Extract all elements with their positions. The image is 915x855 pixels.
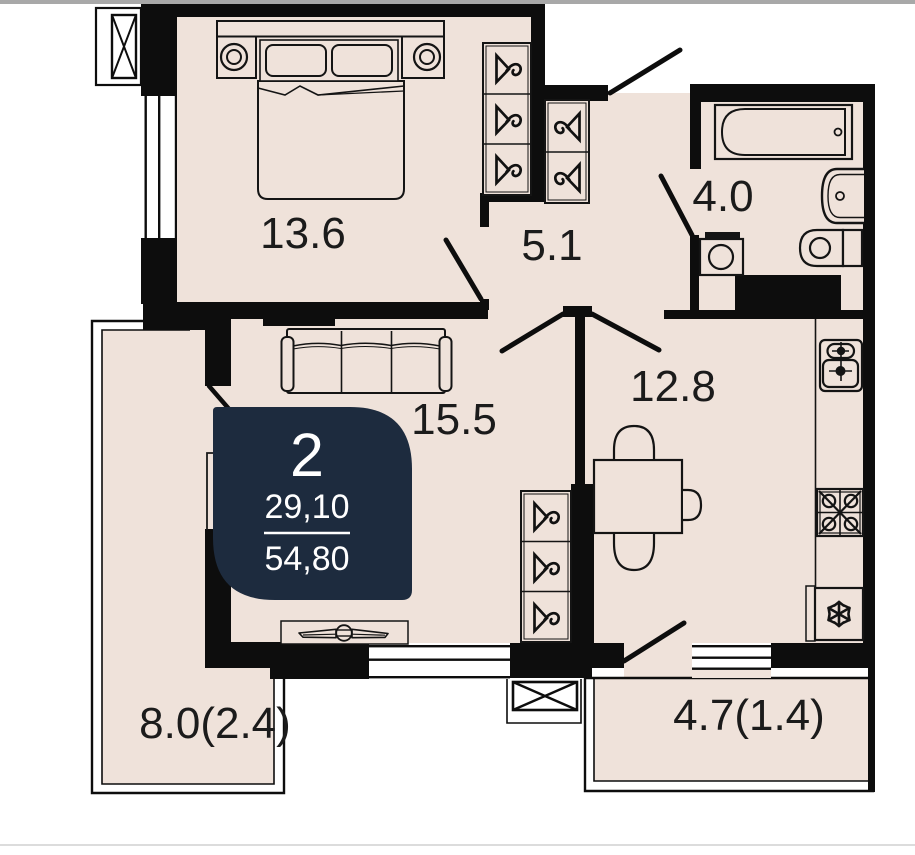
svg-text:8.0(2.4): 8.0(2.4) bbox=[139, 699, 291, 748]
svg-text:12.8: 12.8 bbox=[630, 362, 716, 411]
svg-text:13.6: 13.6 bbox=[260, 209, 346, 258]
svg-text:5.1: 5.1 bbox=[521, 221, 582, 270]
svg-text:54,80: 54,80 bbox=[264, 540, 349, 578]
svg-text:2: 2 bbox=[290, 421, 324, 489]
svg-text:29,10: 29,10 bbox=[264, 488, 349, 526]
svg-text:4.0: 4.0 bbox=[692, 172, 753, 221]
svg-text:15.5: 15.5 bbox=[411, 395, 497, 444]
svg-text:4.7(1.4): 4.7(1.4) bbox=[673, 691, 825, 740]
